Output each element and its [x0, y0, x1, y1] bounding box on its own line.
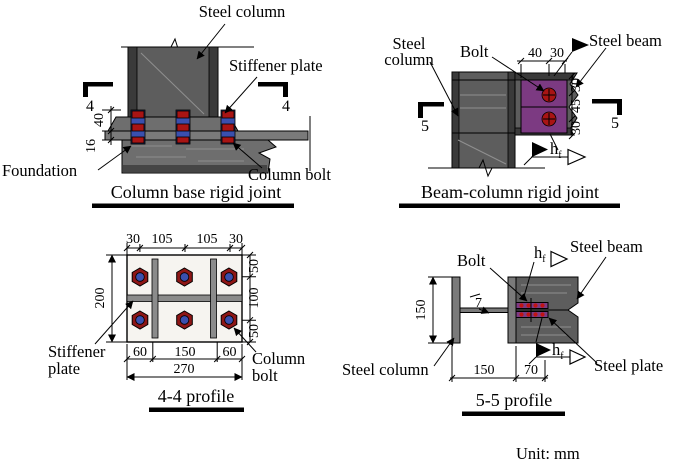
hex-bolt — [177, 311, 193, 329]
column-body — [128, 47, 218, 118]
steel-plate-label: Steel plate — [594, 356, 663, 375]
panel-title: Beam-column rigid joint — [421, 182, 599, 202]
foundation-base-strip — [123, 165, 267, 172]
panel-beam-column: 40 30 30 45 30 hf 5 — [384, 31, 662, 208]
bolt-label: Bolt — [457, 251, 486, 270]
engineering-diagram: 4 4 40 16 Steel column Stiffener plate F… — [0, 0, 685, 469]
dim-7-label: 7 — [475, 296, 482, 311]
column-flange-left — [128, 47, 137, 118]
column-body — [452, 72, 515, 168]
dim-side-45: 45 — [569, 99, 584, 113]
weld-callout-bottom: hf — [524, 134, 585, 165]
dim-60b: 60 — [223, 345, 237, 360]
stiffener-layer — [108, 117, 238, 131]
leader-steel-column — [434, 338, 454, 366]
section-5-label: 5 — [611, 115, 619, 132]
steel-beam-label: Steel beam — [589, 31, 662, 50]
stiffener-plate-label-line2: plate — [48, 359, 80, 378]
column-bolt-label-line2: bolt — [252, 366, 278, 385]
column-flange-left — [452, 72, 459, 168]
title-underline — [149, 408, 244, 413]
dim-270: 270 — [174, 362, 195, 377]
foundation-label: Foundation — [2, 161, 77, 180]
weld-arrow-icon — [570, 350, 585, 364]
dim-40-label: 40 — [528, 46, 542, 61]
section-4-label: 4 — [86, 98, 94, 115]
dim-bolt-spacing: 30 45 30 — [569, 73, 584, 139]
beam-body — [516, 277, 578, 343]
dim-bottom: 60 150 60 270 — [124, 342, 245, 380]
weld-arrow-icon — [568, 150, 585, 165]
steel-column-label: Steel column — [199, 2, 286, 21]
section-5-label: 5 — [421, 118, 429, 135]
hex-bolt — [177, 268, 193, 286]
weld-flag-icon — [536, 343, 551, 357]
panel-title: Column base rigid joint — [111, 182, 282, 202]
dim-150-vert: 150 — [414, 300, 429, 321]
stiffener-plate-label: Stiffener plate — [229, 56, 323, 75]
column-web — [460, 308, 508, 313]
dim-40-label: 40 — [92, 113, 107, 127]
dim-right: 50 100 50 — [242, 252, 262, 345]
hex-bolt — [132, 311, 148, 329]
title-underline — [92, 204, 294, 209]
steel-beam-label: Steel beam — [570, 237, 643, 256]
dim-200: 200 — [93, 288, 108, 309]
stiffener-bar-left — [152, 259, 158, 338]
dim-side-30b: 30 — [569, 121, 584, 135]
section-marker-5-right: 5 — [592, 99, 622, 132]
hex-bolt — [132, 268, 148, 286]
dim-105a: 105 — [152, 232, 173, 247]
dim-150: 150 — [175, 345, 196, 360]
unit-note: Unit: mm — [516, 444, 580, 463]
weld-hf-label: hf — [550, 139, 562, 161]
dim-flange-height: 150 — [414, 277, 452, 343]
dim-30b: 30 — [229, 232, 243, 247]
section-marker-5-left: 5 — [418, 102, 444, 135]
leader-steel-beam — [576, 48, 606, 87]
title-underline — [399, 204, 620, 209]
bolt-label: Bolt — [460, 42, 489, 61]
section-4-label: 4 — [282, 98, 290, 115]
hex-bolt — [221, 268, 237, 286]
weld-hf-label: hf — [534, 243, 546, 265]
dim-top: 30 105 105 30 — [124, 232, 245, 255]
dim-60a: 60 — [133, 345, 147, 360]
bolt-upper — [542, 88, 556, 102]
leader-stiffener-plate — [225, 77, 257, 113]
weld-arrow-icon — [551, 252, 567, 267]
beam-top-flange — [515, 73, 573, 80]
dim-30a: 30 — [126, 232, 140, 247]
dim-50b: 50 — [247, 324, 262, 338]
panel-profile-44: 30 105 105 30 200 50 100 50 60 150 60 27 — [48, 232, 305, 412]
panel-title: 4-4 profile — [158, 386, 234, 406]
steel-column-label: Steel column — [342, 360, 429, 379]
dim-70: 70 — [524, 363, 538, 378]
column-bolt-middle — [176, 110, 190, 144]
dim-bottom: 150 70 — [449, 346, 548, 382]
bolt-lower — [542, 112, 556, 126]
leader-steel-beam — [577, 257, 606, 299]
column-bolt-left — [131, 110, 145, 144]
dim-150-horiz: 150 — [474, 363, 495, 378]
dim-105b: 105 — [197, 232, 218, 247]
column-web-plan — [127, 295, 242, 302]
steel-column-label-line2: column — [384, 50, 434, 69]
dim-30-label: 30 — [550, 46, 564, 61]
panel-profile-55: 150 7 hf hf 150 70 Bolt — [342, 237, 663, 416]
column-flange-right — [209, 47, 218, 118]
hex-bolt — [221, 311, 237, 329]
dim-16-label: 16 — [84, 139, 99, 153]
dim-left: 200 — [93, 255, 127, 342]
stiffener-bar-right — [211, 259, 217, 338]
panel-column-base: 4 4 40 16 Steel column Stiffener plate F… — [2, 2, 331, 208]
dim-50a: 50 — [247, 259, 262, 273]
weld-flag-icon — [532, 142, 548, 157]
section-marker-4-right: 4 — [258, 82, 290, 115]
dim-100: 100 — [247, 288, 262, 309]
column-bolt-right — [221, 110, 235, 144]
panel-title: 5-5 profile — [476, 390, 552, 410]
column-flange-right — [508, 72, 515, 168]
title-underline — [462, 412, 565, 417]
diagram-canvas: 4 4 40 16 Steel column Stiffener plate F… — [0, 0, 685, 469]
column-flange-left — [452, 277, 460, 343]
column-flange-right — [508, 277, 516, 343]
